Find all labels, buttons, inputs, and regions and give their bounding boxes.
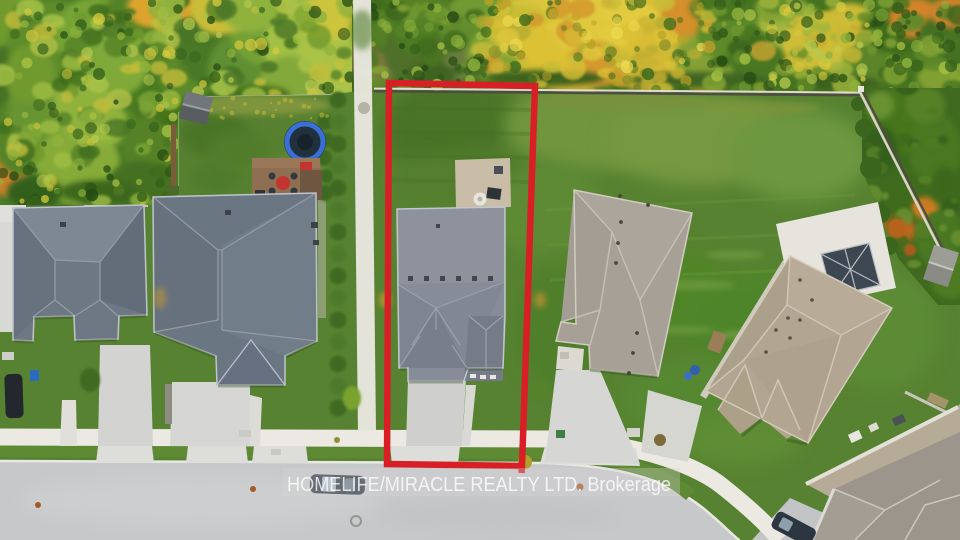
svg-text:HOMELIFE/MIRACLE REALTY LTD. B: HOMELIFE/MIRACLE REALTY LTD. Brokerage — [287, 473, 671, 496]
